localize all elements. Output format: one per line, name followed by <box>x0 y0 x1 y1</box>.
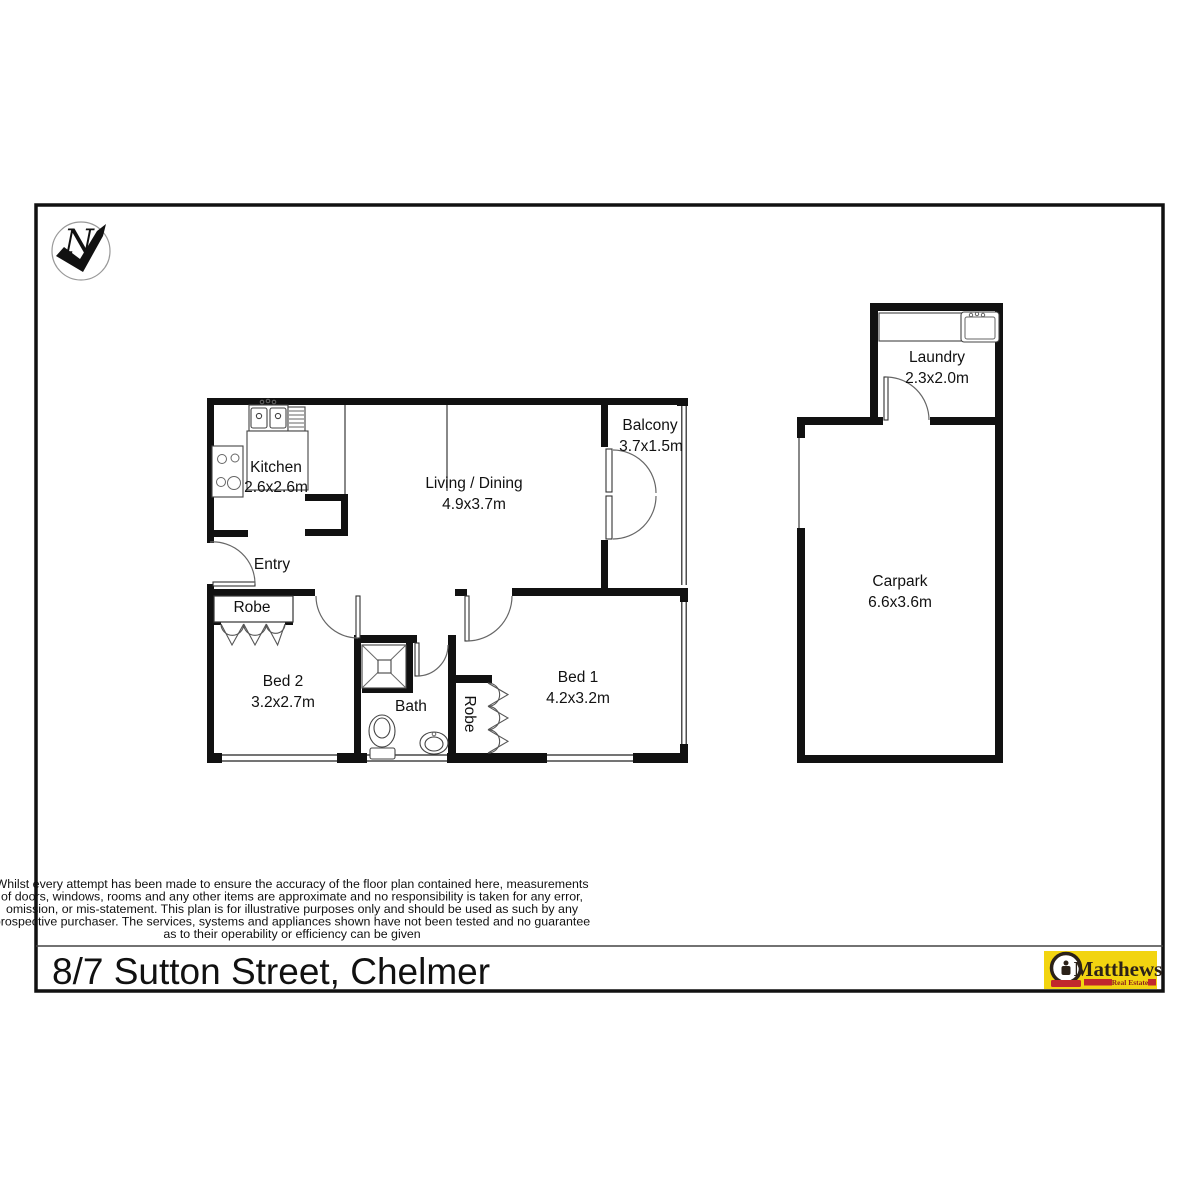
kitchen-cooktop <box>212 446 243 497</box>
carpark-dims: 6.6x3.6m <box>868 594 932 611</box>
shower <box>362 645 406 688</box>
disclaimer-line-5: as to their operability or efficiency ca… <box>163 927 420 941</box>
balcony-label: Balcony <box>622 417 677 434</box>
kitchen-label: Kitchen <box>250 459 302 476</box>
balcony-dims: 3.7x1.5m <box>619 438 683 455</box>
north-indicator-icon: N <box>52 222 110 280</box>
living-dims: 4.9x3.7m <box>442 496 506 513</box>
logo-ribbon <box>1051 980 1081 987</box>
robe-bed1 <box>488 683 508 753</box>
property-address: 8/7 Sutton Street, Chelmer <box>52 951 490 992</box>
disclaimer: Whilst every attempt has been made to en… <box>0 877 590 941</box>
bath-label: Bath <box>395 698 427 715</box>
logo-tagline-text: Real Estate <box>1112 978 1149 987</box>
floor-plan-page: N <box>0 0 1200 1200</box>
floor-plan-image: N <box>0 0 1200 1200</box>
bed1-label: Bed 1 <box>558 669 599 686</box>
laundry-carpark-walls <box>797 303 1003 763</box>
carpark-label: Carpark <box>872 573 927 590</box>
entry-label: Entry <box>254 556 290 573</box>
bed2-dims: 3.2x2.7m <box>251 694 315 711</box>
living-label: Living / Dining <box>425 475 522 492</box>
laundry-label: Laundry <box>909 349 965 366</box>
laundry-dims: 2.3x2.0m <box>905 370 969 387</box>
basin <box>420 732 448 754</box>
bed2-label: Bed 2 <box>263 673 304 690</box>
agency-logo: Matthews Real Estate <box>1044 951 1162 989</box>
kitchen-stove-unit <box>288 407 305 431</box>
robe-bed2-label: Robe <box>233 599 270 616</box>
toilet <box>369 715 395 759</box>
kitchen-dims: 2.6x2.6m <box>244 479 308 496</box>
robe-bed1-label: Robe <box>461 695 478 732</box>
bed1-dims: 4.2x3.2m <box>546 690 610 707</box>
laundry-bench <box>879 312 999 342</box>
